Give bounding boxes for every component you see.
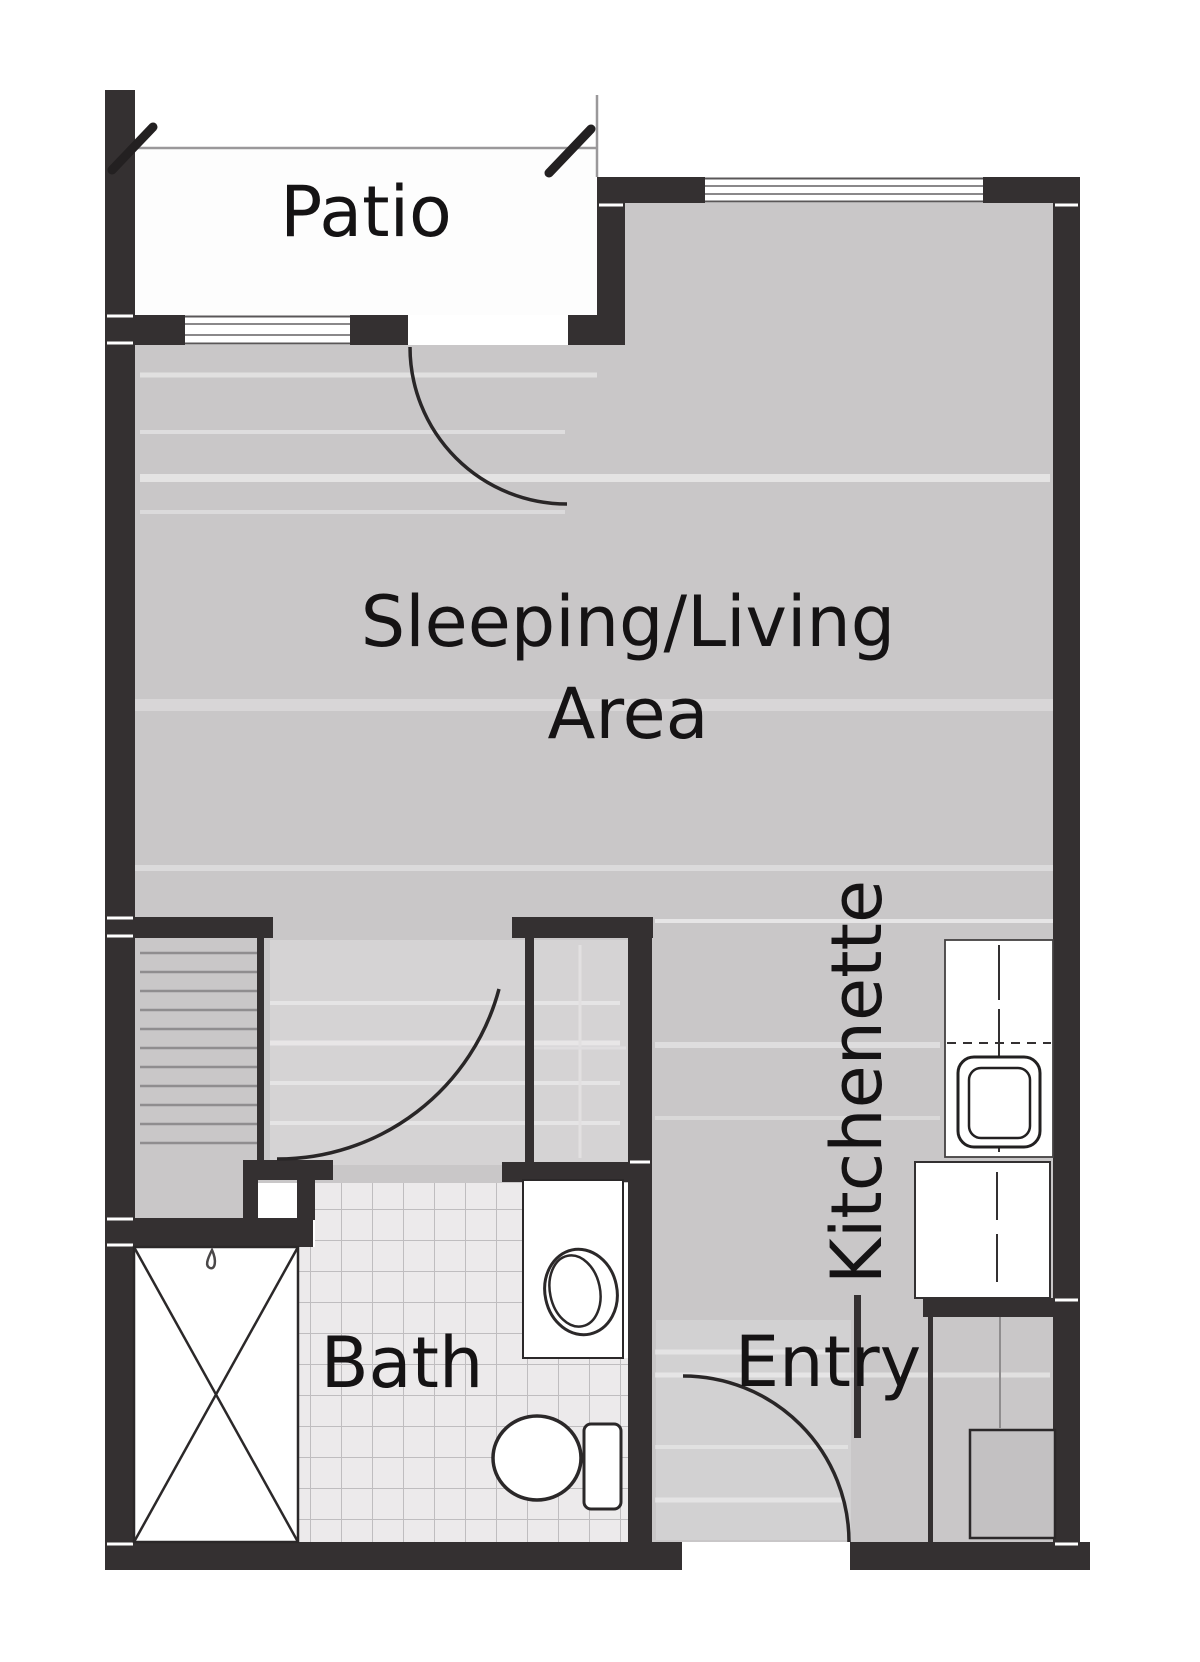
- entry-closet-appliance: [970, 1430, 1055, 1538]
- kitchen-counter: [945, 940, 1053, 1157]
- bath-lower-wall-bar: [134, 1218, 313, 1247]
- bath-entry-divider-wall: [628, 917, 652, 1542]
- living-room-window: [705, 177, 983, 203]
- left-exterior-wall: [105, 90, 135, 1570]
- refrigerator: [915, 1162, 1050, 1298]
- bottom-wall-left: [105, 1542, 682, 1570]
- sleeping-living-floor-upper-right: [625, 203, 1053, 348]
- wardrobe-partition: [525, 938, 534, 1162]
- patio-bottom-wall-right: [568, 315, 625, 345]
- shower: [134, 1247, 298, 1542]
- hall-floor-sheen: [270, 940, 628, 1165]
- patio-bottom-wall-left: [105, 315, 185, 345]
- toilet-bowl: [493, 1416, 581, 1500]
- closet-partition: [257, 938, 264, 1160]
- top-wall-left-segment: [597, 177, 705, 203]
- patio-window: [185, 315, 350, 345]
- floor-plan-page: Patio Sleeping/Living Area Kitchenette B…: [0, 0, 1200, 1662]
- bathroom-vanity: [523, 1180, 625, 1358]
- hall-strip-floor: [134, 1160, 244, 1220]
- bath-top-wall-connector-right: [297, 1180, 315, 1220]
- patio-bottom-wall-post: [350, 315, 408, 345]
- patio-label: Patio: [280, 171, 452, 253]
- toilet-tank: [584, 1424, 621, 1509]
- bath-label: Bath: [321, 1322, 484, 1404]
- entry-label: Entry: [735, 1321, 921, 1403]
- kitchenette-wall-stub: [923, 1298, 1053, 1317]
- sleeping-living-label-line2: Area: [547, 673, 708, 755]
- right-exterior-wall: [1053, 177, 1080, 1570]
- interior-wall-left: [134, 917, 273, 938]
- floor-plan: Patio Sleeping/Living Area Kitchenette B…: [0, 0, 1200, 1662]
- sleeping-living-label-line1: Sleeping/Living: [361, 581, 895, 663]
- kitchenette-label: Kitchenette: [816, 880, 898, 1284]
- bath-top-wall-connector-left: [243, 1160, 258, 1218]
- entry-closet-partition: [928, 1317, 933, 1542]
- bottom-wall-right: [850, 1542, 1090, 1570]
